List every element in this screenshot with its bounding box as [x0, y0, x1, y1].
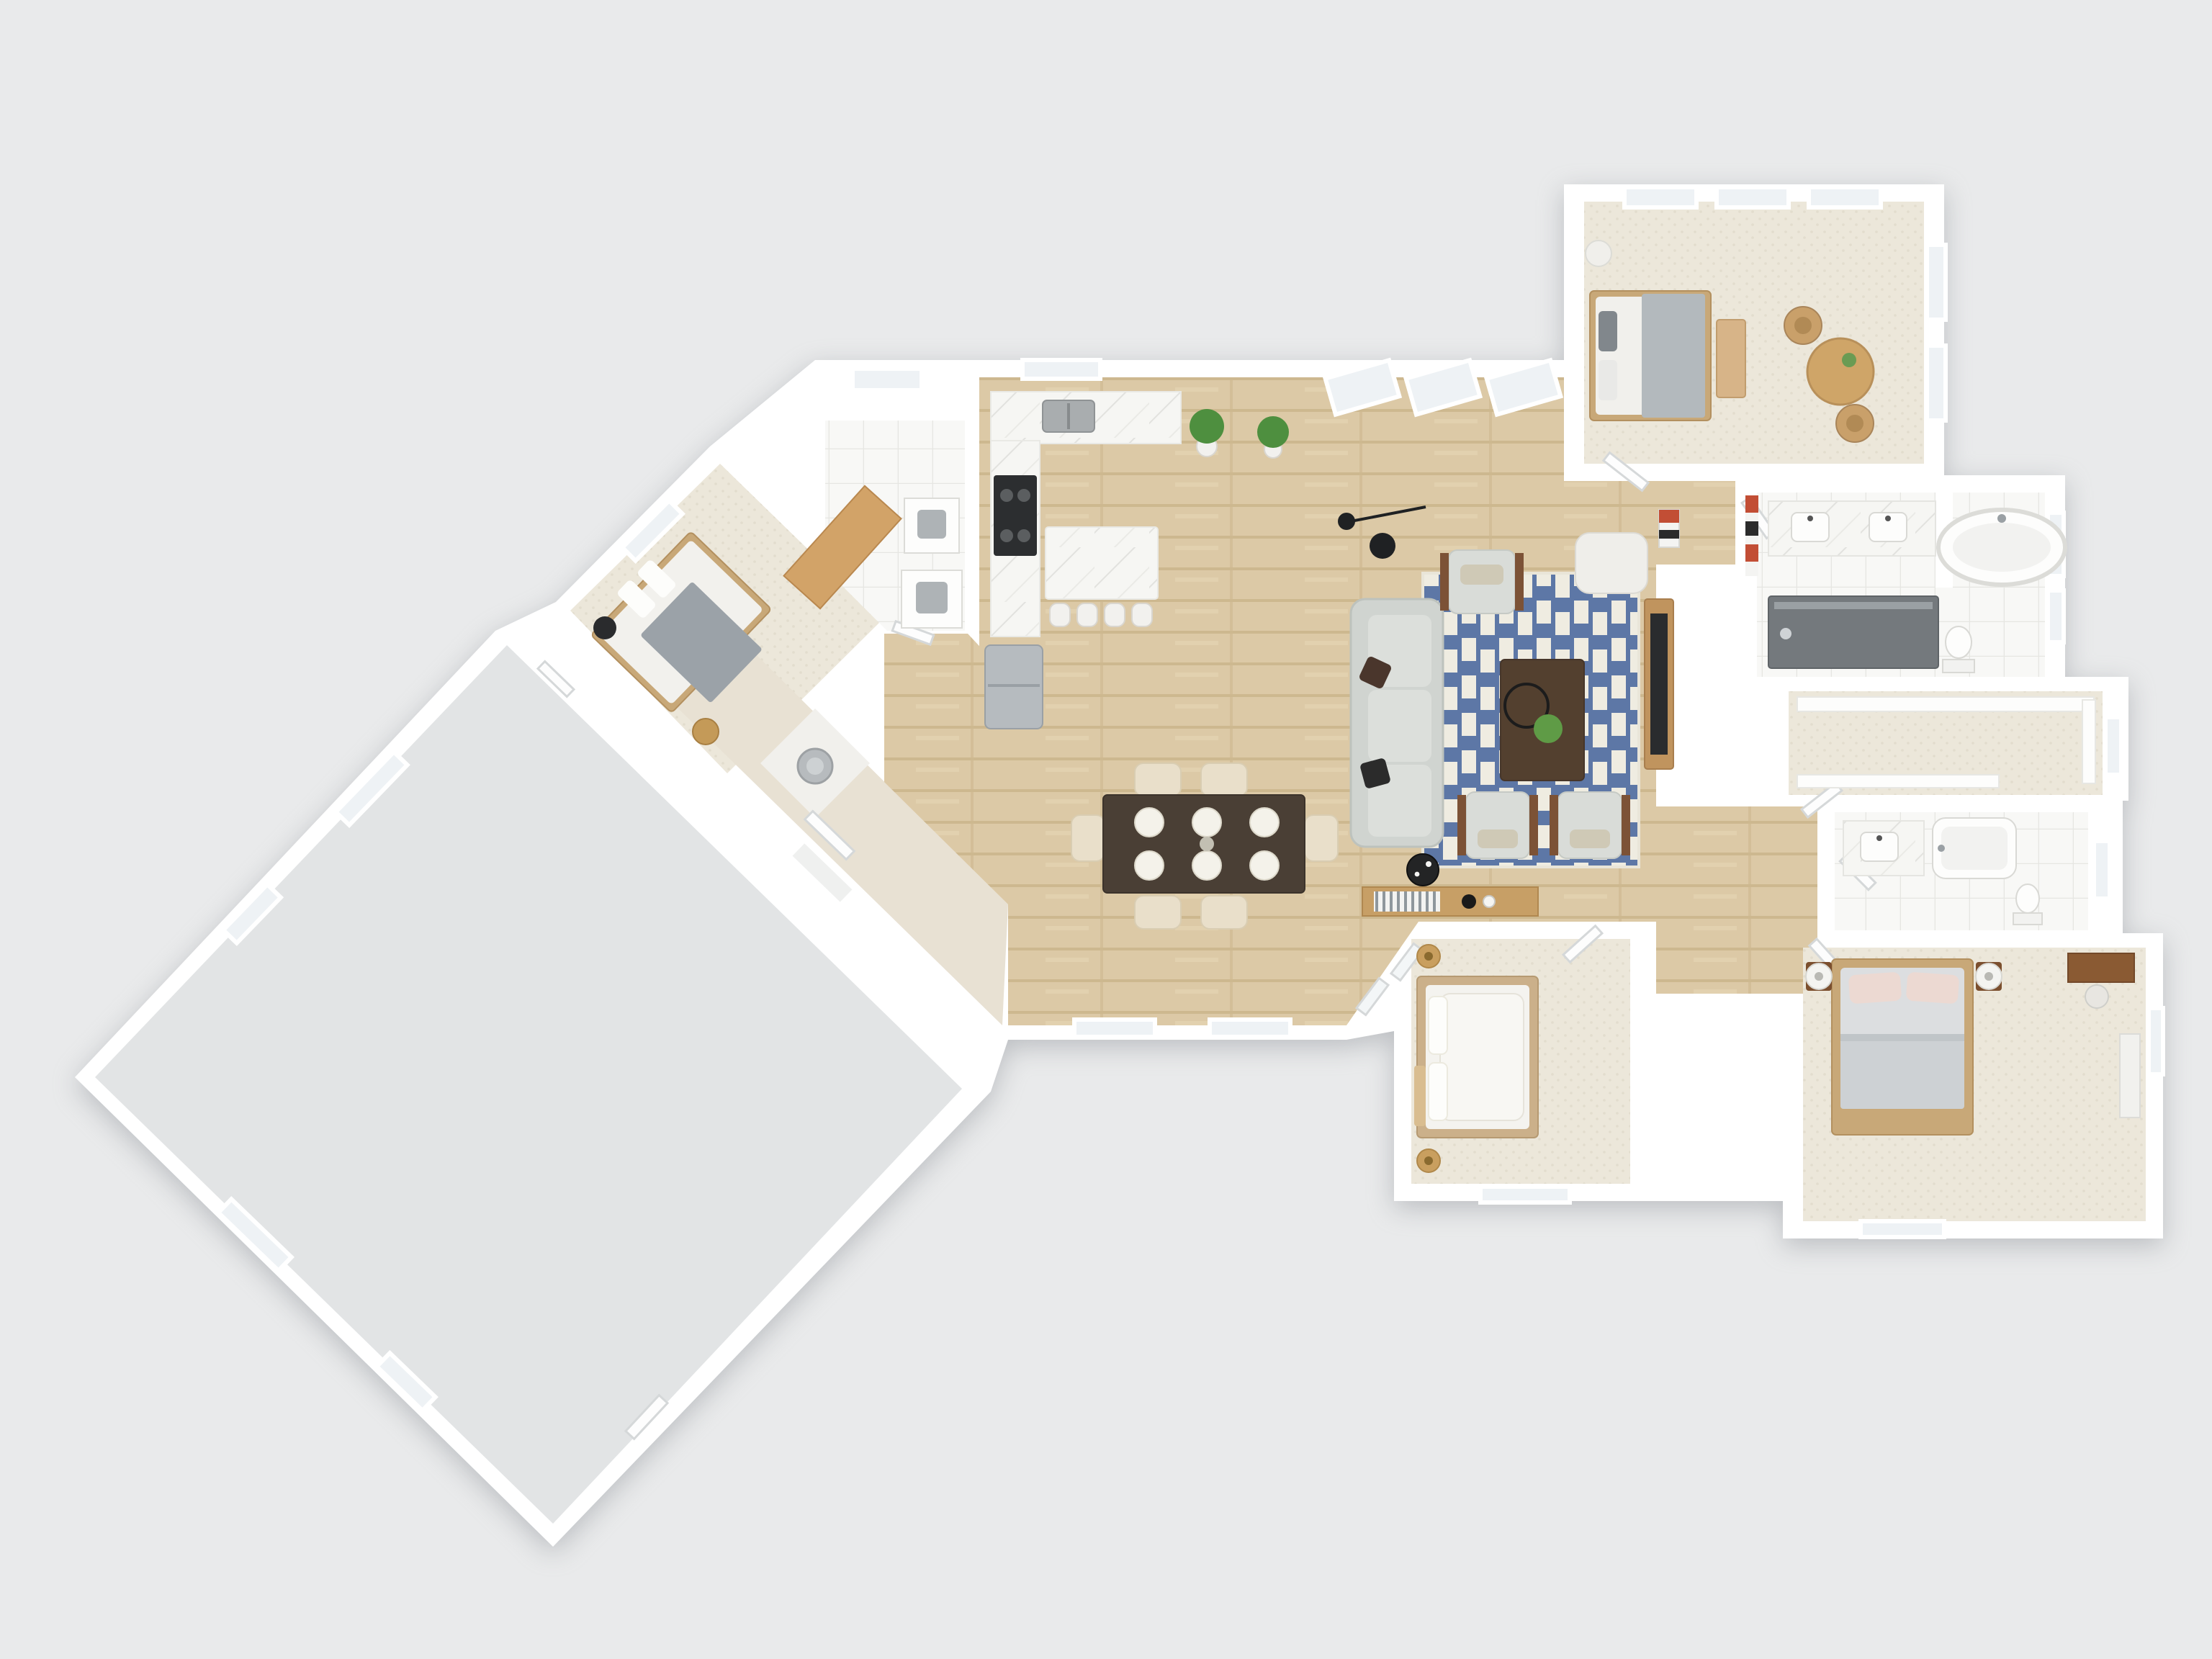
cooktop [994, 475, 1037, 556]
masterbath-art-black [1745, 521, 1758, 536]
closet-shelf-bottom [1797, 775, 1999, 788]
armchair-top-arm-left [1440, 553, 1449, 611]
dining-centerpiece [1200, 837, 1214, 851]
bedroom3-desk-chair [2085, 985, 2108, 1008]
arc-lamp-head [1370, 533, 1395, 559]
bedroom1-chair-2-seat [1846, 415, 1863, 432]
armchair-br-arm-left [1550, 795, 1558, 855]
bedroom3-pillow-2 [1906, 972, 1960, 1004]
cooktop-burner-3 [1000, 529, 1013, 542]
dining-chair-bottom-1 [1135, 896, 1181, 929]
bedroom1-chair-1-seat [1794, 317, 1812, 334]
armchair-br-seat [1558, 792, 1622, 858]
bedroom2-nightstand-2-decor [1424, 1156, 1433, 1165]
hall-art-stripe-black [1659, 530, 1679, 539]
dryer-door [917, 510, 946, 539]
bedroom3-blanket [1840, 1040, 1964, 1109]
bath2-east-window [2094, 841, 2110, 899]
bath2-sink-drain [1876, 835, 1882, 841]
hall-art-stripe-red [1659, 510, 1679, 523]
dining-chair-right [1305, 815, 1338, 861]
side-table-decor-2 [1415, 872, 1420, 877]
console-books [1374, 891, 1440, 912]
armchair-bl-arm-right [1529, 795, 1538, 855]
bedroom2-nightstand-1-decor [1424, 952, 1433, 961]
bedroom1-nightstand [1586, 240, 1611, 266]
counter-plant [1190, 409, 1224, 444]
masterbath-toilet-tank [1943, 660, 1974, 673]
dining-window-1 [1074, 1020, 1155, 1037]
armchair-br-arm-right [1622, 795, 1630, 855]
bedroom3-lamp-2-hub [1984, 972, 1993, 981]
bedroom2-pillow-1 [1429, 997, 1447, 1054]
dining-chair-top-2 [1201, 763, 1247, 796]
armchair-br-cushion [1570, 829, 1610, 848]
side-table-decor-1 [1426, 861, 1431, 867]
sofa-cushion-2 [1368, 690, 1431, 762]
side-table-black [1407, 854, 1439, 886]
bedroom1-right-window-1 [1927, 245, 1946, 320]
bedroom1-pillow-light [1599, 360, 1617, 400]
bedroom2-bench [1414, 1066, 1426, 1126]
dinner-plate-5 [1192, 851, 1221, 880]
masterbath-shower-glass [1774, 602, 1933, 609]
armchair-top-cushion [1460, 565, 1503, 585]
masterbath-shower-head [1780, 628, 1791, 639]
masterbath-sink-2-drain [1885, 516, 1891, 521]
bedroom1-right-window-2 [1927, 346, 1946, 421]
dining-window-2 [1210, 1020, 1290, 1037]
ottoman [1575, 533, 1647, 593]
arc-lamp-head-2 [1338, 513, 1355, 530]
bedroom-left-nightstand [593, 616, 616, 639]
fireplace-screen [1650, 613, 1668, 755]
bedroom-left-stool [693, 719, 719, 745]
bath2-toilet-bowl [2016, 884, 2039, 913]
dinner-plate-6 [1250, 851, 1279, 880]
bath2-tub-basin [1941, 827, 2008, 870]
bedroom2-pillow-2 [1429, 1063, 1447, 1120]
bedroom1-bench [1717, 320, 1745, 397]
bedroom3-south-window [1861, 1221, 1944, 1237]
floorplan-3d-render [0, 0, 2212, 1659]
bedroom3-pillow-1 [1848, 972, 1902, 1004]
bedroom1-top-window-1 [1624, 187, 1696, 207]
bedroom3-blanket-fold [1840, 1034, 1964, 1041]
bedroom3-dresser [2120, 1034, 2140, 1118]
masterbath-toilet-bowl [1946, 626, 1972, 658]
masterbath-art-red-2 [1745, 544, 1758, 562]
island-stool-4 [1132, 603, 1152, 626]
bedroom1-top-window-3 [1809, 187, 1881, 207]
bedroom1-top-window-2 [1717, 187, 1789, 207]
masterbath-east-window-2 [2048, 590, 2064, 642]
dining-chair-top-1 [1135, 763, 1181, 796]
water-heater-top [806, 757, 824, 775]
cooktop-burner-2 [1017, 489, 1030, 502]
bath2-toilet-tank [2013, 913, 2042, 925]
armchair-top-arm-right [1515, 553, 1524, 611]
armchair-bl-cushion [1478, 829, 1518, 848]
bedroom1-table-plant [1842, 353, 1856, 367]
closet-east-window [2105, 717, 2121, 775]
floorplan-svg [0, 0, 2212, 1659]
closet-shelf-right [2082, 700, 2095, 783]
coffee-table-plant [1534, 714, 1563, 743]
masterbath-art-red-1 [1745, 495, 1758, 513]
island-stool-3 [1105, 603, 1125, 626]
masterbath-sink-1-drain [1807, 516, 1813, 521]
dining-chair-bottom-2 [1201, 896, 1247, 929]
cooktop-burner-4 [1017, 529, 1030, 542]
island-stool-2 [1077, 603, 1097, 626]
armchair-bl-seat [1466, 792, 1529, 858]
masterbath-tub-basin [1953, 523, 2051, 572]
armchair-bl-arm-left [1457, 795, 1466, 855]
wall-plant [1257, 416, 1289, 448]
bedroom1-blanket [1642, 294, 1705, 418]
dining-chair-left [1071, 815, 1105, 861]
bedroom3-lamp-1-hub [1815, 972, 1823, 981]
bedroom2-south-window [1480, 1187, 1570, 1202]
dinner-plate-3 [1250, 808, 1279, 837]
bedroom2-duvet [1440, 994, 1524, 1120]
dinner-plate-2 [1192, 808, 1221, 837]
fridge-door-line [988, 684, 1040, 687]
dinner-plate-4 [1135, 851, 1164, 880]
cooktop-burner-1 [1000, 489, 1013, 502]
kitchen-window [1022, 360, 1100, 379]
bedroom3-desk [2068, 953, 2134, 982]
bedroom3-east-window [2149, 1008, 2163, 1074]
masterbath-tub-faucet [1997, 514, 2006, 523]
closet-shelf-top [1797, 697, 2094, 711]
island-stool-1 [1050, 603, 1070, 626]
bedroom1-pillow-dark [1599, 311, 1617, 351]
dinner-plate-1 [1135, 808, 1164, 837]
bath2-tub-faucet [1938, 845, 1945, 852]
kitchen-sink-divider [1067, 403, 1070, 429]
console-decor-black [1462, 894, 1476, 909]
kitchen-island [1046, 527, 1158, 599]
washer-door [916, 582, 948, 613]
console-decor-white [1483, 896, 1495, 907]
bedroom1-round-table [1807, 338, 1874, 405]
laundry-window [853, 369, 922, 390]
